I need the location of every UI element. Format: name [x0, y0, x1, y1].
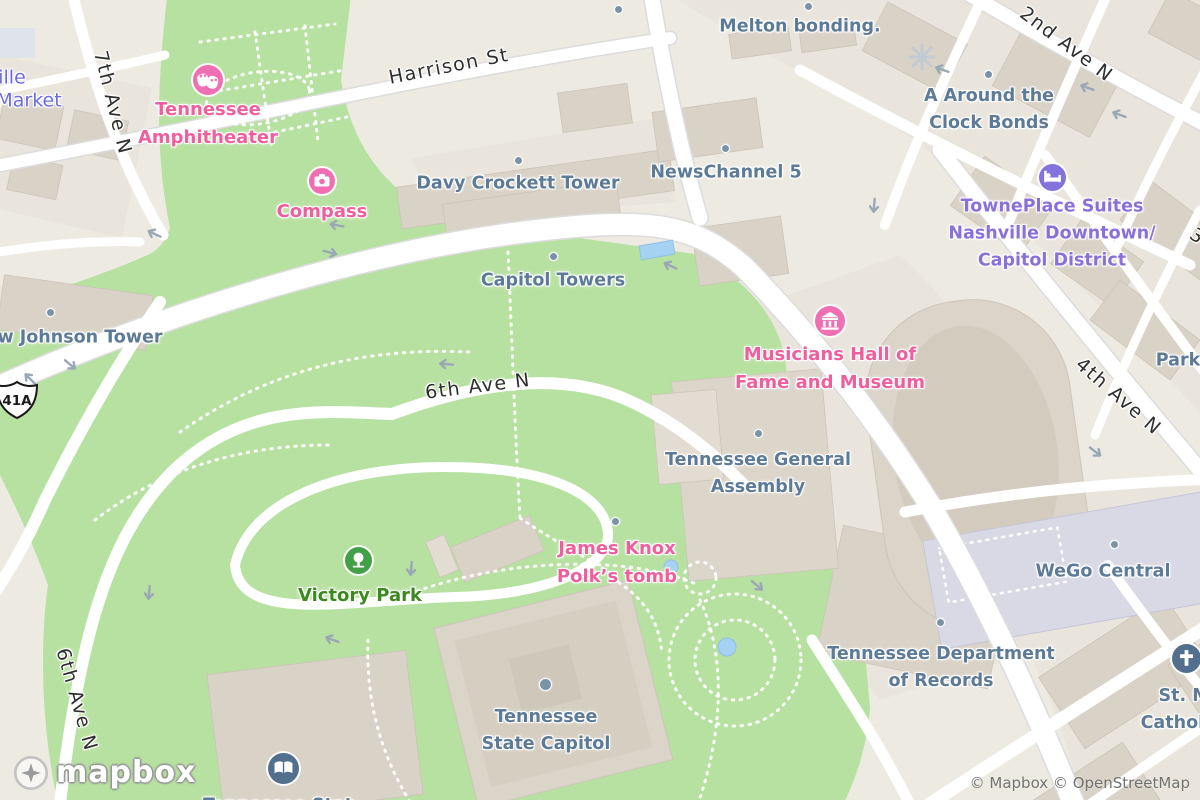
poi-label-davy-crockett-tower[interactable]: Davy Crockett Tower	[416, 170, 619, 197]
religious-christian-icon[interactable]	[1172, 644, 1200, 673]
one-way-arrow-icon	[1074, 81, 1095, 98]
mapbox-logo[interactable]: mapbox	[14, 755, 196, 790]
street-label-2nd-ave-n: 2nd Ave N	[1013, 0, 1119, 90]
poi-dot[interactable]	[549, 252, 558, 261]
poi-label-victory-park[interactable]: Victory Park	[298, 582, 422, 610]
one-way-arrow-icon	[436, 360, 455, 374]
theater-masks-icon[interactable]	[193, 65, 223, 95]
poi-label-newschannel-5[interactable]: NewsChannel 5	[650, 159, 801, 186]
street-label-harrison-st: Harrison St	[386, 41, 511, 93]
one-way-arrow-icon	[325, 221, 345, 236]
mapbox-logo-icon	[14, 756, 48, 790]
poi-dot[interactable]	[804, 2, 813, 11]
poi-dot[interactable]	[1110, 540, 1119, 549]
poi-label-johnson-tower-partial[interactable]: w Johnson Tower	[0, 324, 163, 351]
poi-dot[interactable]	[721, 144, 730, 153]
park-tree-icon[interactable]	[345, 547, 372, 574]
map-overlay-layer: 7th Ave NHarrison St2nd Ave N34th Ave N6…	[0, 0, 1200, 800]
street-label-4th-ave-n: 4th Ave N	[1068, 351, 1167, 443]
poi-label-wego-central[interactable]: WeGo Central	[1035, 558, 1170, 585]
one-way-arrow-icon	[319, 633, 340, 650]
poi-label-tennessee-general-assembly[interactable]: Tennessee GeneralAssembly	[665, 447, 851, 501]
one-way-arrow-icon	[870, 198, 884, 217]
street-label-6th-ave-n-lower: 6th Ave N	[47, 645, 105, 755]
shop-label-market-partial-line2[interactable]: Market	[0, 86, 62, 115]
one-way-arrow-icon	[62, 353, 84, 374]
poi-dot[interactable]	[754, 429, 763, 438]
one-way-arrow-icon	[1087, 440, 1109, 461]
library-icon[interactable]	[268, 753, 299, 784]
lodging-icon[interactable]	[1039, 164, 1066, 191]
poi-label-melton-bonding[interactable]: Melton bonding.	[719, 13, 880, 40]
one-way-arrow-icon	[141, 227, 162, 245]
street-label-3rd-ave-partial: 3	[1183, 221, 1200, 253]
us-route-shield-41a: 41A	[0, 377, 41, 427]
poi-label-tennessee-department-of-records[interactable]: Tennessee Departmentof Records	[827, 641, 1055, 695]
poi-label-musicians-hall-of-fame[interactable]: Musicians Hall ofFame and Museum	[735, 341, 925, 397]
poi-label-a-around-the-clock-bonds[interactable]: A Around theClock Bonds	[924, 83, 1054, 137]
camera-icon[interactable]	[309, 168, 335, 194]
poi-dot[interactable]	[614, 5, 623, 14]
one-way-arrow-icon	[145, 585, 159, 604]
map-attribution[interactable]: © Mapbox © OpenStreetMap	[970, 774, 1190, 792]
poi-label-tennessee-stat-partial[interactable]: Tennessee Stat	[203, 792, 353, 800]
street-label-7th-ave-n: 7th Ave N	[85, 48, 139, 158]
museum-icon[interactable]	[815, 306, 845, 336]
poi-label-towneplace-suites[interactable]: TownePlace SuitesNashville Downtown/Capi…	[948, 193, 1155, 274]
poi-dot[interactable]	[936, 618, 945, 627]
poi-label-capitol-towers[interactable]: Capitol Towers	[481, 267, 625, 294]
poi-label-tennessee-amphitheater[interactable]: TennesseeAmphitheater	[138, 96, 278, 152]
road-label-parkway-partial: Parkwa	[1156, 347, 1200, 374]
one-way-arrow-icon	[749, 574, 771, 595]
one-way-arrow-icon	[1106, 108, 1127, 125]
poi-label-tennessee-state-capitol[interactable]: TennesseeState Capitol	[482, 704, 611, 758]
map-canvas[interactable]: 7th Ave NHarrison St2nd Ave N34th Ave N6…	[0, 0, 1200, 800]
poi-label-james-knox-polks-tomb[interactable]: James KnoxPolk’s tomb	[557, 535, 677, 591]
poi-dot[interactable]	[611, 517, 620, 526]
poi-dot[interactable]	[539, 678, 552, 691]
one-way-arrow-icon	[322, 242, 342, 258]
one-way-arrow-icon	[929, 63, 950, 80]
svg-text:41A: 41A	[2, 393, 32, 409]
poi-dot[interactable]	[46, 308, 55, 317]
poi-label-st-marys-catholic-partial[interactable]: St. MaCatholic C	[1141, 683, 1200, 737]
one-way-arrow-icon	[657, 259, 678, 277]
poi-label-compass[interactable]: Compass	[277, 198, 368, 226]
poi-dot[interactable]	[514, 156, 523, 165]
one-way-arrow-icon	[407, 561, 421, 580]
mapbox-logo-text: mapbox	[56, 755, 196, 790]
poi-dot[interactable]	[984, 70, 993, 79]
